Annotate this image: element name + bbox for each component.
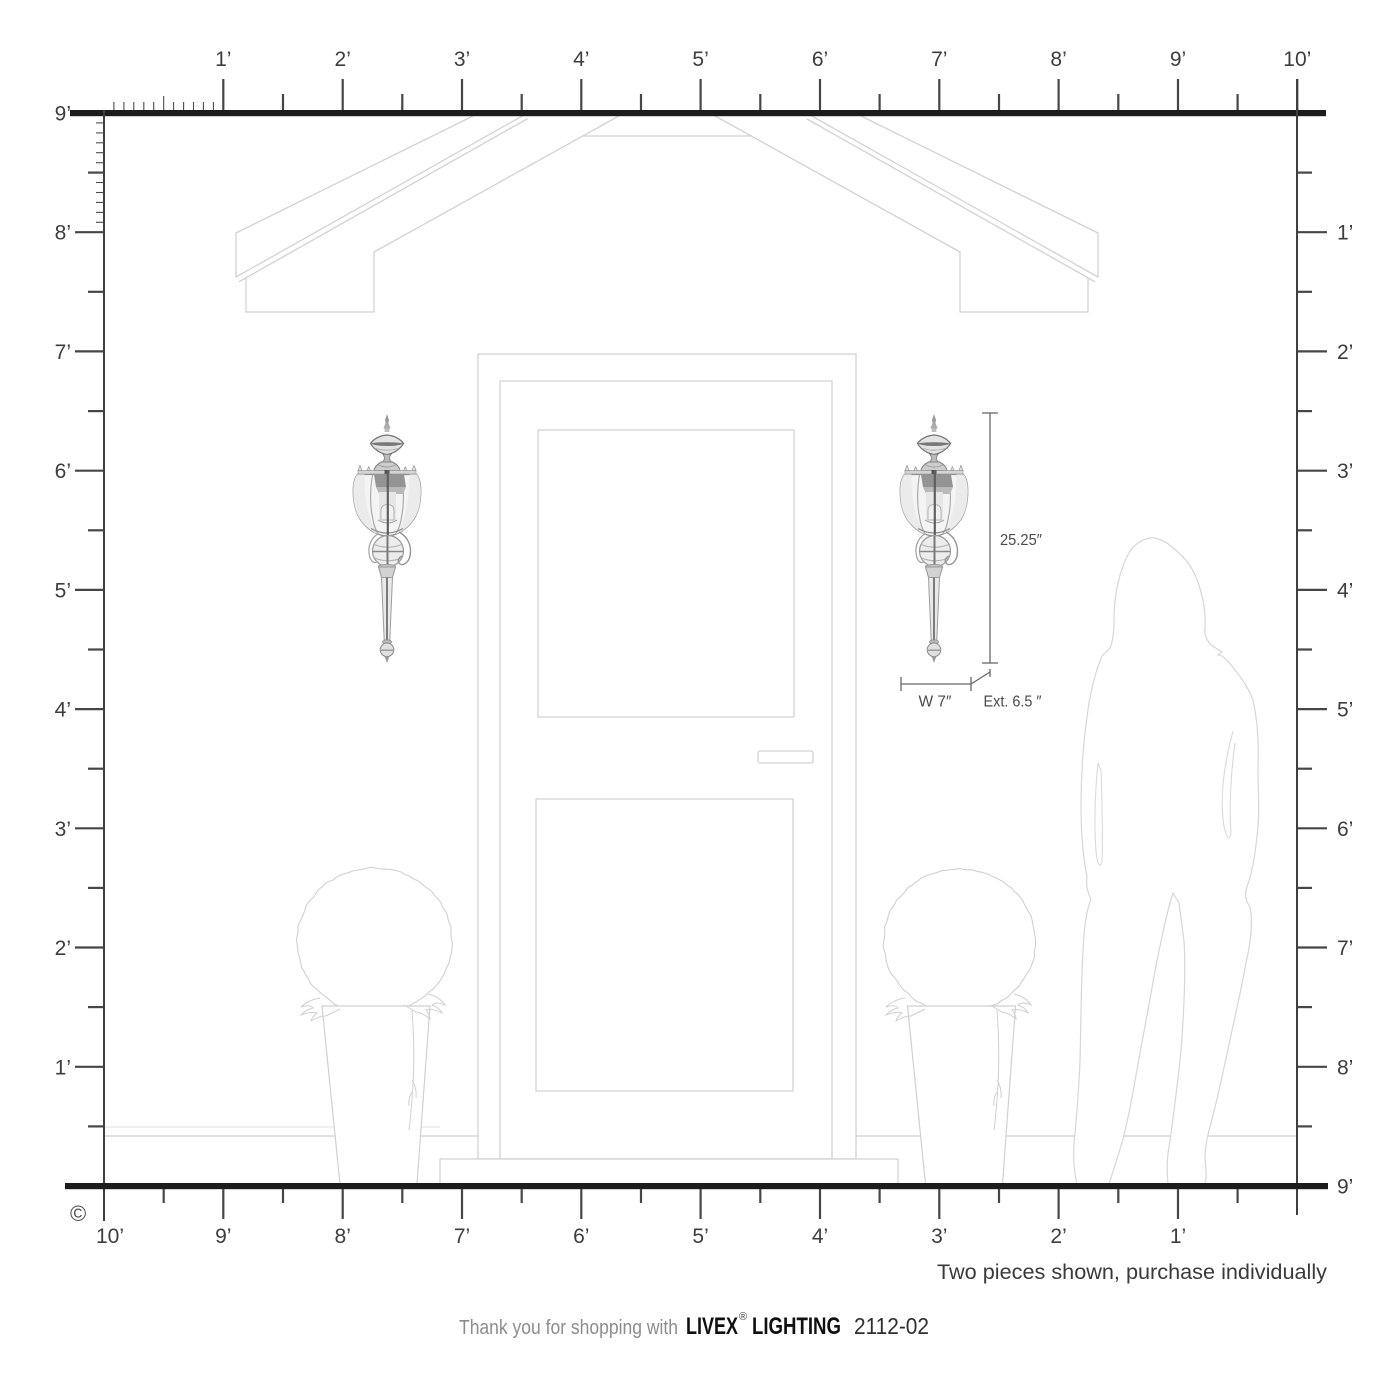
svg-text:Ext. 6.5 ″: Ext. 6.5 ″ — [984, 694, 1042, 711]
svg-text:25.25″: 25.25″ — [1000, 532, 1042, 549]
svg-text:6’: 6’ — [1337, 818, 1353, 841]
svg-text:6’: 6’ — [573, 1225, 589, 1248]
svg-text:3’: 3’ — [454, 48, 470, 71]
svg-text:4’: 4’ — [55, 699, 71, 722]
svg-text:LIVEX: LIVEX — [686, 1313, 738, 1340]
svg-text:1’: 1’ — [1170, 1225, 1186, 1248]
svg-text:5’: 5’ — [692, 48, 708, 71]
svg-text:9’: 9’ — [1170, 48, 1186, 71]
svg-text:3’: 3’ — [931, 1225, 947, 1248]
svg-text:5’: 5’ — [1337, 699, 1353, 722]
svg-text:7’: 7’ — [931, 48, 947, 71]
svg-text:©: © — [70, 1201, 86, 1226]
svg-text:1’: 1’ — [215, 48, 231, 71]
svg-text:1’: 1’ — [55, 1056, 71, 1079]
svg-text:9’: 9’ — [215, 1225, 231, 1248]
svg-text:3’: 3’ — [55, 818, 71, 841]
svg-text:6’: 6’ — [812, 48, 828, 71]
svg-text:W 7″: W 7″ — [919, 694, 953, 711]
svg-text:5’: 5’ — [692, 1225, 708, 1248]
svg-text:1’: 1’ — [1337, 222, 1353, 245]
svg-text:8’: 8’ — [1337, 1056, 1353, 1079]
svg-text:8’: 8’ — [335, 1225, 351, 1248]
svg-text:Thank you for shopping with: Thank you for shopping with — [459, 1317, 678, 1339]
svg-text:®: ® — [739, 1311, 747, 1323]
svg-text:2’: 2’ — [55, 937, 71, 960]
svg-text:2’: 2’ — [1337, 341, 1353, 364]
svg-text:2’: 2’ — [335, 48, 351, 71]
svg-text:4’: 4’ — [1337, 579, 1353, 602]
svg-text:10’: 10’ — [1283, 48, 1311, 71]
svg-text:7’: 7’ — [454, 1225, 470, 1248]
svg-text:7’: 7’ — [55, 341, 71, 364]
svg-text:9’: 9’ — [55, 103, 71, 126]
svg-text:3’: 3’ — [1337, 460, 1353, 483]
svg-text:LIGHTING: LIGHTING — [752, 1313, 841, 1340]
svg-text:5’: 5’ — [55, 579, 71, 602]
svg-text:6’: 6’ — [55, 460, 71, 483]
svg-text:4’: 4’ — [812, 1225, 828, 1248]
svg-text:10’: 10’ — [96, 1225, 124, 1248]
svg-text:8’: 8’ — [55, 222, 71, 245]
svg-text:4’: 4’ — [573, 48, 589, 71]
svg-text:2112-02: 2112-02 — [854, 1313, 929, 1339]
svg-text:7’: 7’ — [1337, 937, 1353, 960]
svg-text:2’: 2’ — [1050, 1225, 1066, 1248]
svg-text:9’: 9’ — [1337, 1176, 1353, 1199]
svg-text:8’: 8’ — [1050, 48, 1066, 71]
svg-text:Two pieces shown, purchase ind: Two pieces shown, purchase individually — [937, 1260, 1327, 1284]
